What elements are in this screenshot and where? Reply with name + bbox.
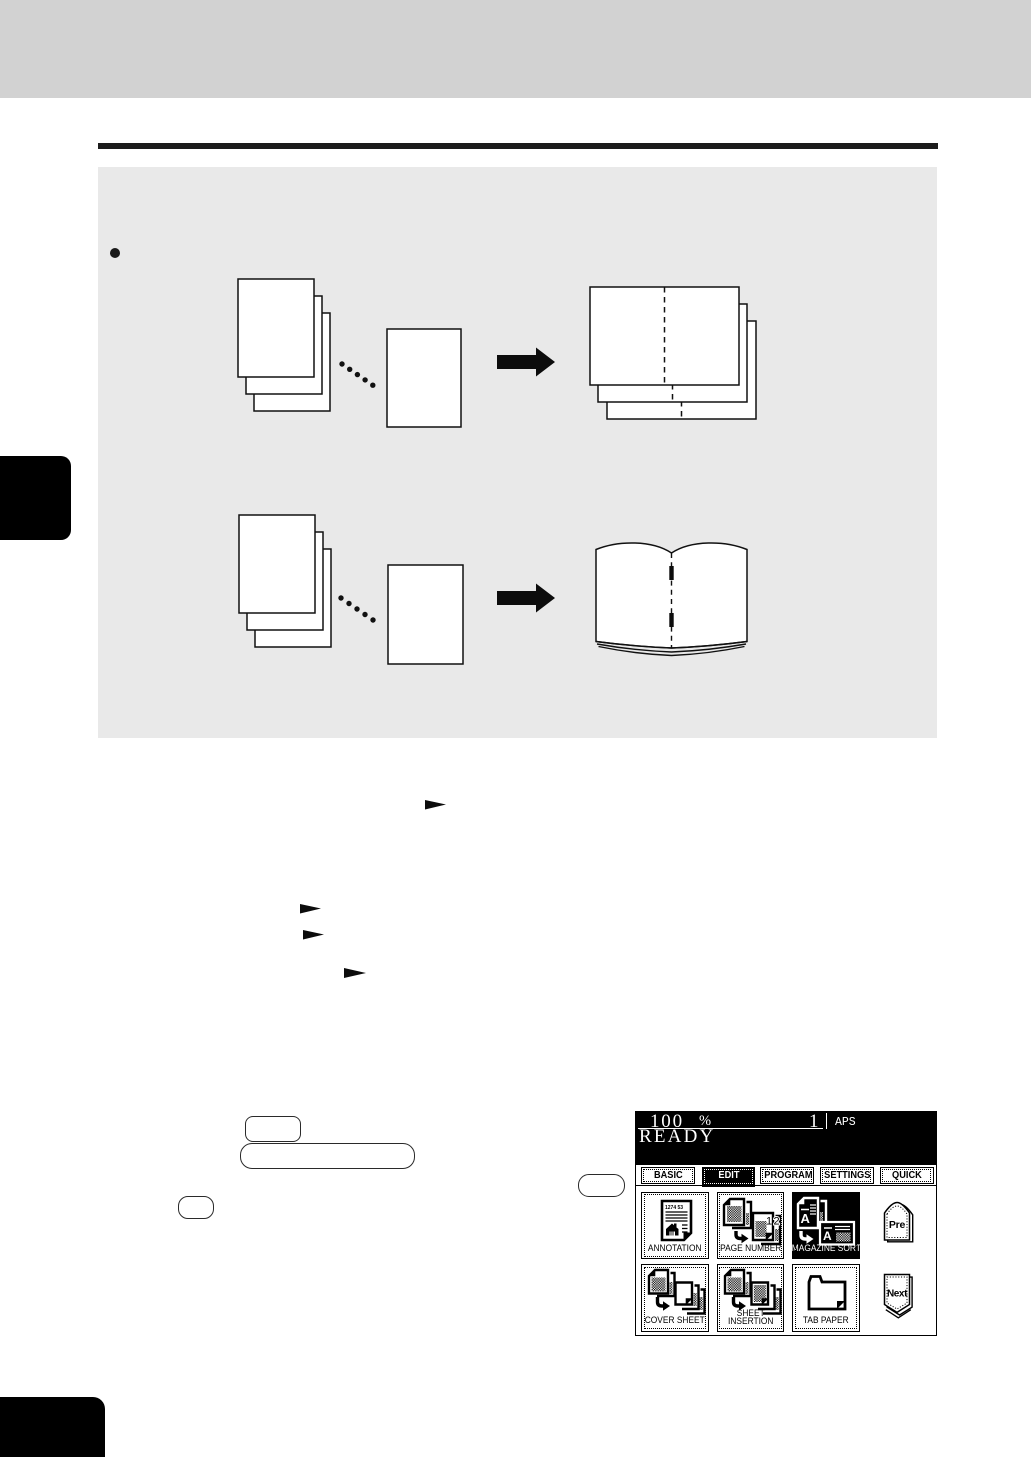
svg-text:1274 53: 1274 53	[665, 1205, 683, 1211]
svg-text:1: 1	[766, 1215, 772, 1227]
svg-text:Pre: Pre	[889, 1219, 906, 1231]
svg-text:Next: Next	[887, 1289, 908, 1300]
svg-text:2: 2	[773, 1215, 779, 1227]
svg-text:A: A	[801, 1211, 811, 1226]
svg-text:A: A	[823, 1229, 832, 1243]
